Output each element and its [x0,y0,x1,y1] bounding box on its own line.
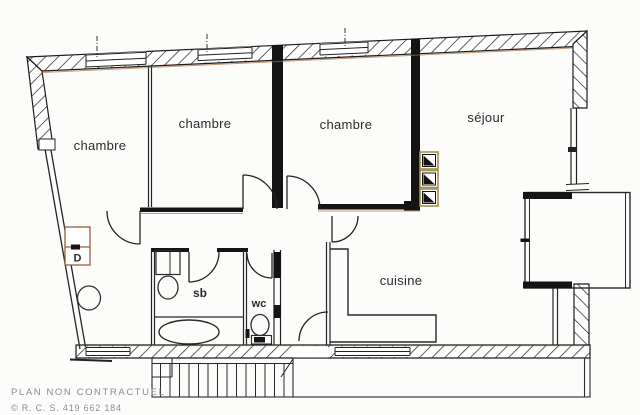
wall-bottom-left-cap [70,360,112,362]
vanity-icon [156,251,180,275]
wall-bathroom-left [152,250,155,345]
wall-right-upper [573,31,587,108]
bathtub-icon [159,320,219,344]
window-top-1 [86,51,146,67]
disclaimer-text: PLAN NON CONTRACTUEL [11,387,165,398]
room-label-kitchen: cuisine [380,273,423,288]
duct-kitchen-east [553,288,558,345]
scan-accent-lines [42,48,590,346]
room-label-bedroom3: chambre [320,117,373,132]
wall-left-notch [39,139,55,150]
entry-door-opening [292,346,328,358]
window-right-living [571,108,577,184]
windows [86,41,589,358]
kitchen-counter-icon [330,249,436,342]
window-top-2 [198,47,252,63]
entry-stool-icon [78,286,101,310]
duct-block-1 [274,252,282,278]
window-right-tick [568,147,576,152]
copyright-text: © R. C. S. 419 662 184 [11,403,122,413]
wall-kitchen-west [327,242,331,346]
exterior-walls [27,31,590,358]
balcony-door-threshold [566,184,589,191]
room-label-bedroom2: chambre [179,116,232,131]
door-bedroom2 [243,175,277,209]
wall-bottom [76,345,590,358]
terrace-stairs [152,358,590,397]
room-label-living: séjour [467,110,505,125]
vent-grille-icon [420,152,438,169]
door-bathroom [189,252,219,282]
fixtures [78,249,437,344]
duct-block-2 [274,305,282,318]
door-toilet [247,253,272,278]
room-label-bathroom: sb [193,286,207,300]
window-bottom-1 [86,347,130,358]
vent-grille-icons [420,152,438,206]
closet-label: D [74,253,82,265]
wall-right-lower [574,284,589,346]
window-top-3 [320,41,368,57]
room-label-bedroom1: chambre [74,138,127,153]
wall-hall-top-left [140,208,243,213]
balcony [521,192,631,289]
door-entry [299,312,328,341]
wall-bedroom3-living [411,39,420,209]
door-bedroom3 [287,176,320,209]
floor-plan-image: chambre chambre chambre séjour cuisine s… [0,0,640,415]
window-bottom-kitchen [335,347,410,358]
sink-icon [158,276,178,299]
door-bedroom1 [107,211,140,244]
door-kitchen [332,216,358,242]
floor-plan-drawing: chambre chambre chambre séjour cuisine s… [0,0,640,415]
toilet-icon [251,315,269,336]
vent-grille-icon [420,171,438,188]
vent-grille-icon [420,189,438,206]
wall-bedroom2-3 [272,45,283,208]
door-arcs [107,175,358,341]
room-label-toilet: wc [251,298,267,310]
wall-hall-top-right-stub [404,201,420,211]
stair-treads [161,364,285,397]
